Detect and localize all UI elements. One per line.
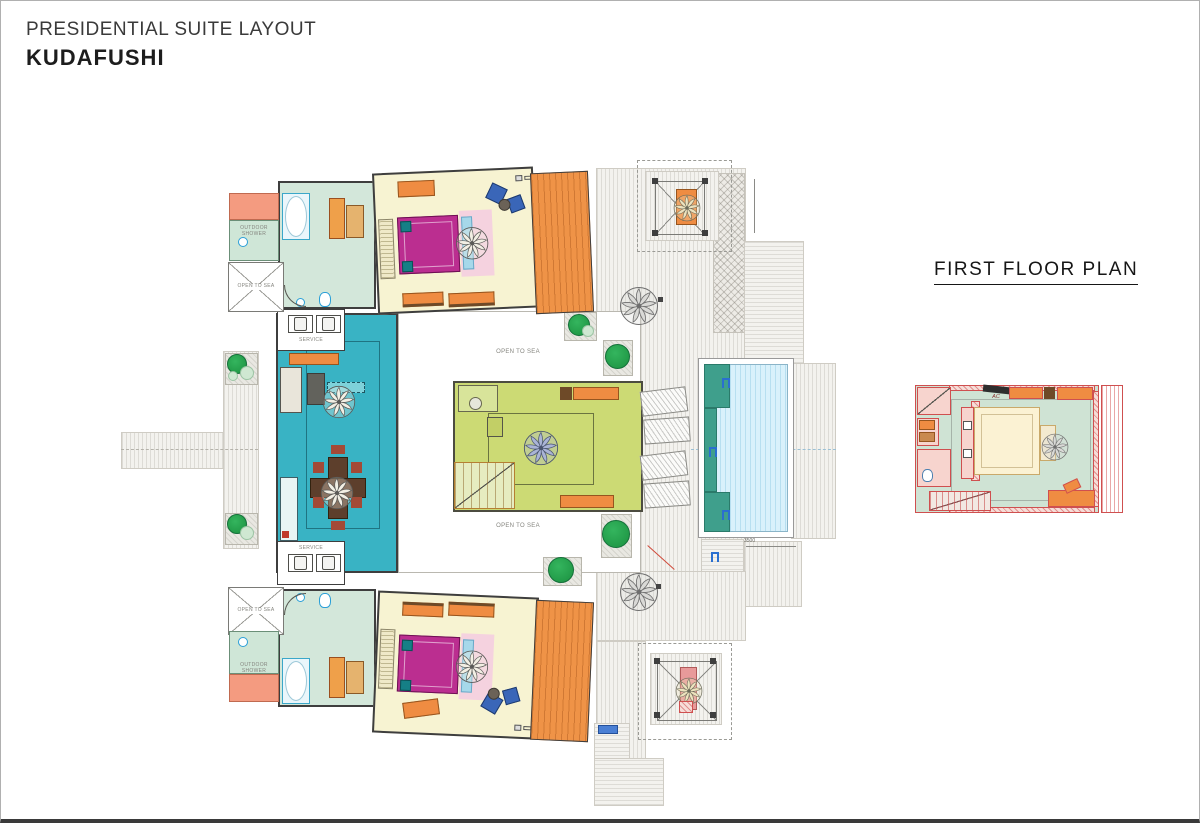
ffp-deck-strip xyxy=(1101,385,1123,513)
post xyxy=(652,178,658,184)
armchair xyxy=(502,687,520,705)
pillow xyxy=(402,261,413,272)
bathtub xyxy=(282,193,310,240)
sun-lounger xyxy=(643,480,691,508)
pillow xyxy=(400,680,411,691)
ffp-cabinet xyxy=(1009,387,1043,399)
tv-cabinet xyxy=(487,417,503,437)
bathtub xyxy=(282,658,310,704)
red-hatch-marker xyxy=(679,701,693,713)
service-label-south: SERVICE xyxy=(279,546,343,552)
pool-ladder-icon xyxy=(722,378,730,388)
daybed xyxy=(448,291,495,307)
dining-chair xyxy=(351,462,362,473)
dim-line-vertical xyxy=(754,179,755,233)
dining-chair xyxy=(313,462,324,473)
pool-ladder-icon xyxy=(711,552,719,562)
post xyxy=(654,712,660,718)
ffp-cabinet-dark xyxy=(1044,387,1055,399)
ceiling-fan-icon xyxy=(322,385,356,419)
tree-icon xyxy=(548,557,574,583)
ffp-nightstand xyxy=(963,421,972,430)
bed xyxy=(397,215,460,275)
ffp-daybed xyxy=(1048,490,1095,507)
bedroom-north xyxy=(372,167,539,315)
ffp-bed-cover xyxy=(981,414,1033,468)
ffp-drawer xyxy=(919,420,935,430)
bed xyxy=(397,635,460,695)
kitchen-fixture xyxy=(282,531,289,538)
shower-icon xyxy=(238,237,248,247)
fixture-icon xyxy=(514,725,521,731)
open-to-sea-box-south: OPEN TO SEA xyxy=(228,587,284,635)
living-bench xyxy=(289,353,339,365)
ceiling-fan-icon xyxy=(320,476,354,510)
ffp-headboard xyxy=(961,407,974,479)
washer-icon xyxy=(316,554,341,572)
ffp-nightstand xyxy=(963,449,972,458)
ffp-toilet-icon xyxy=(922,469,933,482)
open-to-sea-label-nw: OPEN TO SEA xyxy=(235,284,276,290)
pool-stair xyxy=(701,539,744,575)
bedroom-south xyxy=(372,591,539,740)
sheet-brand: KUDAFUSHI xyxy=(26,45,165,71)
bathtub-basin xyxy=(285,661,307,701)
staircase xyxy=(454,462,515,509)
pool-ladder-icon xyxy=(709,447,717,457)
toilet-icon xyxy=(319,292,331,307)
service-label-north: SERVICE xyxy=(279,338,343,344)
sun-lounger xyxy=(643,416,691,444)
vanity xyxy=(329,657,345,698)
outdoor-shower-label-north: OUTDOOR SHOWER xyxy=(229,226,279,238)
wardrobe xyxy=(378,219,396,280)
open-to-sea-label-north: OPEN TO SEA xyxy=(468,349,568,356)
salmon-deck-north xyxy=(229,193,279,220)
tree-icon xyxy=(602,520,630,548)
garden-shower-icon xyxy=(619,286,659,326)
post xyxy=(702,230,708,236)
daybed xyxy=(448,602,495,618)
outdoor-shower-label-south: OUTDOOR SHOWER xyxy=(229,663,279,675)
open-to-sea-label-south: OPEN TO SEA xyxy=(468,523,568,530)
ffp-bathroom xyxy=(917,449,951,487)
side-cabinet xyxy=(560,387,572,400)
dim-line-pool xyxy=(746,546,796,547)
first-floor-plan-title: FIRST FLOOR PLAN xyxy=(934,259,1138,285)
pool-side-deck xyxy=(791,363,836,539)
ffp-bed xyxy=(974,407,1040,475)
pool-dim-label: 3500 xyxy=(744,538,755,544)
daybed xyxy=(402,602,444,618)
sheet-title: PRESIDENTIAL SUITE LAYOUT xyxy=(26,19,316,41)
post xyxy=(710,712,716,718)
shrub-icon xyxy=(582,325,594,337)
entry-jetty xyxy=(121,432,227,469)
ffp-cabinet xyxy=(1057,387,1093,400)
shrub-icon xyxy=(228,371,238,381)
ceiling-fan-icon xyxy=(523,430,559,466)
washer-icon xyxy=(288,315,313,333)
pool-ladder-icon xyxy=(722,510,730,520)
shrub-icon xyxy=(240,526,254,540)
pillow xyxy=(400,221,411,232)
toilet-icon xyxy=(319,593,331,608)
shower-icon xyxy=(238,637,248,647)
upper-right-deck xyxy=(744,241,804,364)
ffp-staircase xyxy=(929,491,991,511)
jetty-centerline xyxy=(121,449,258,450)
coffee-table xyxy=(498,199,511,212)
pillow xyxy=(402,640,413,651)
washer-icon xyxy=(288,554,313,572)
drawing-sheet: PRESIDENTIAL SUITE LAYOUT KUDAFUSHI FIRS… xyxy=(0,0,1200,823)
dresser xyxy=(346,661,364,694)
ceiling-fan-icon xyxy=(454,649,489,684)
ffp-ac-label: AC xyxy=(987,394,1005,400)
dining-chair xyxy=(331,445,345,454)
bottom-platform xyxy=(594,758,664,806)
post xyxy=(702,178,708,184)
daybed xyxy=(573,387,619,400)
vanity xyxy=(329,198,345,239)
bathtub-basin xyxy=(285,196,307,237)
lounge-chair xyxy=(402,698,440,719)
daybed xyxy=(560,495,614,508)
post xyxy=(654,658,660,664)
open-to-sea-label-sw: OPEN TO SEA xyxy=(235,608,276,614)
wardrobe xyxy=(378,629,396,690)
desk-chair xyxy=(469,397,482,410)
fixture-icon xyxy=(515,175,522,181)
daybed xyxy=(402,292,444,308)
terrace-deck-south xyxy=(530,600,594,742)
pool-steps-deck xyxy=(744,541,802,607)
ceiling-fan-icon xyxy=(673,194,701,222)
post xyxy=(710,658,716,664)
dining-chair xyxy=(331,521,345,530)
dresser xyxy=(346,205,364,238)
tree-icon xyxy=(605,344,630,369)
washer-icon xyxy=(316,315,341,333)
open-to-sea-box-north: OPEN TO SEA xyxy=(228,262,284,312)
terrace-deck-north xyxy=(530,171,594,314)
post xyxy=(652,230,658,236)
ffp-drawer xyxy=(919,432,935,442)
ceiling-fan-icon xyxy=(1041,433,1069,461)
salmon-deck-south xyxy=(229,674,279,702)
shower-post xyxy=(658,297,663,302)
bottom-stair-marker xyxy=(598,725,618,734)
lounge-sofa xyxy=(280,367,302,413)
shower-post xyxy=(656,584,661,589)
garden-shower-icon xyxy=(619,572,659,612)
ffp-shower-room xyxy=(917,387,951,415)
bedroom-bench xyxy=(397,180,435,198)
shrub-icon xyxy=(240,366,254,380)
ceiling-fan-icon xyxy=(454,226,489,261)
